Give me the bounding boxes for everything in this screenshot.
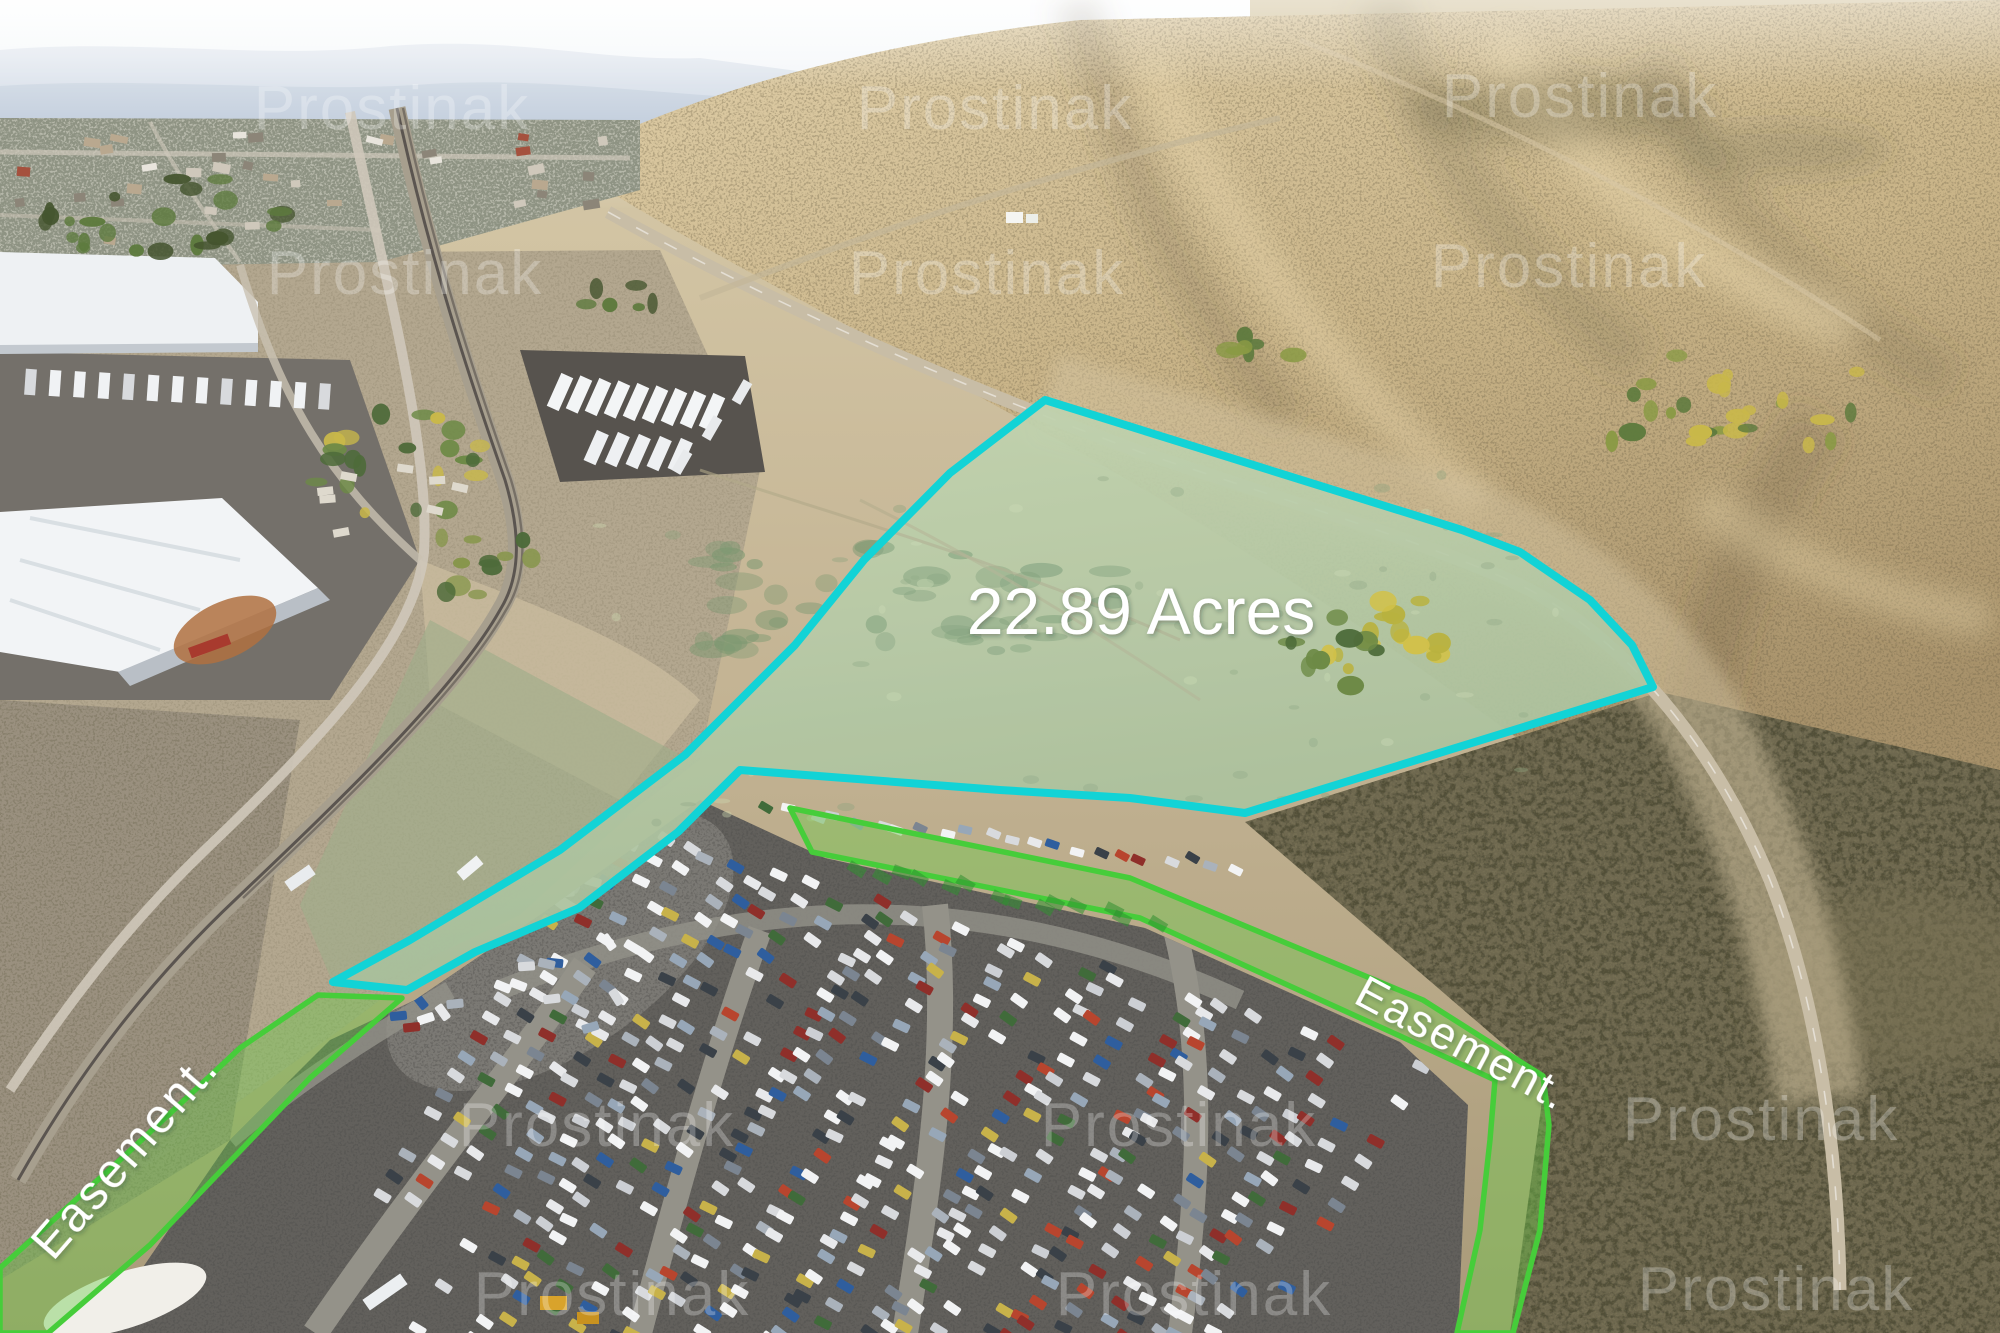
water-tank [1006,212,1023,223]
watermark-text: Prostinak [267,239,543,308]
area-label: 22.89 Acres [967,574,1316,648]
watermark-text: Prostinak [459,1091,735,1160]
watermark-text: Prostinak [474,1260,750,1329]
trucking-yard [520,350,765,482]
watermark-text: Prostinak [1623,1085,1899,1154]
watermark-text: Prostinak [849,239,1125,308]
aerial-photo-canvas: 22.89 Acres Easement.Easement. Prostinak… [0,0,2000,1333]
watermark-text: Prostinak [1041,1091,1317,1160]
watermark-text: Prostinak [1638,1255,1914,1324]
warehouse-roof-north [0,252,258,352]
watermark-text: Prostinak [1431,232,1707,301]
watermark-text: Prostinak [1056,1260,1332,1329]
aerial-photo: 22.89 Acres Easement.Easement. Prostinak… [0,0,2000,1333]
atmospheric-haze [0,0,2000,90]
